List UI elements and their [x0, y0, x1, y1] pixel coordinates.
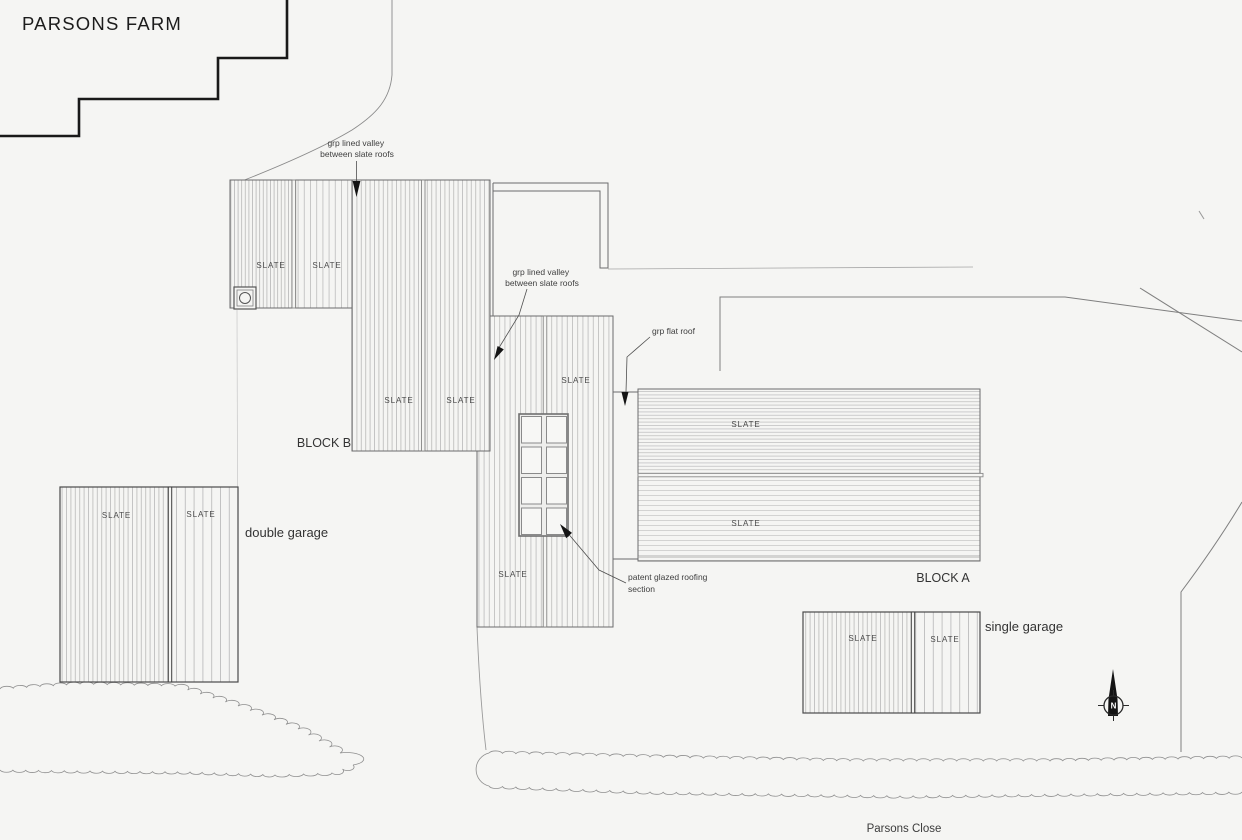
block-a-ridge: [638, 473, 983, 476]
slate-label: SLATE: [256, 261, 285, 270]
hedge-bottom-top-edge: [489, 751, 1242, 761]
slate-label: SLATE: [930, 635, 959, 644]
glazing-pane: [547, 447, 567, 474]
valley-top-annotation-line1: grp lined valley: [327, 138, 384, 148]
plan-canvas: PARSONS FARM grp lined valley between sl…: [0, 0, 1242, 840]
slate-label: SLATE: [848, 634, 877, 643]
glazing-pane: [547, 417, 567, 444]
block-a-label: BLOCK A: [916, 571, 970, 585]
patent-glazing-grid: [519, 414, 568, 536]
block-a-roof-south-slope: [638, 477, 980, 561]
single-garage-ridge: [911, 612, 914, 713]
patent-glazing-annotation: patent glazed roofing section: [628, 572, 710, 594]
street-name-label: Parsons Close: [867, 823, 942, 835]
patent-glazing-annotation-line2: section: [628, 584, 655, 594]
road-edge-curved: [1181, 502, 1242, 752]
site-plan-drawing: PARSONS FARM grp lined valley between sl…: [0, 0, 1242, 840]
block-b-label: BLOCK B: [297, 436, 351, 450]
slate-label: SLATE: [186, 510, 215, 519]
road-edge-diagonal: [1140, 288, 1242, 352]
road-edge-upper: [720, 297, 1242, 371]
glazing-pane: [522, 447, 542, 474]
slate-label: SLATE: [731, 420, 760, 429]
slate-label: SLATE: [102, 511, 131, 520]
glazing-pane: [547, 478, 567, 505]
block-b-left-roof-panel-2: [296, 180, 352, 308]
rear-boundary-line: [608, 267, 973, 269]
double-garage-ridge: [168, 487, 171, 682]
slate-label: SLATE: [446, 396, 475, 405]
block-a-roof-north-slope: [638, 389, 980, 475]
valley-mid-annotation-line2: between slate roofs: [505, 278, 579, 288]
single-garage-roof-panel-1: [803, 612, 913, 713]
slate-label: SLATE: [384, 396, 413, 405]
flat-roof-leader: [626, 337, 650, 392]
slate-label: SLATE: [312, 261, 341, 270]
single-garage-label: single garage: [985, 619, 1063, 634]
hedge-left-top-edge: [0, 682, 364, 765]
valley-mid-annotation-line1: grp lined valley: [512, 267, 569, 277]
glazing-pane: [522, 417, 542, 444]
slate-label: SLATE: [498, 570, 527, 579]
hedge-bottom-end-cap: [476, 753, 489, 786]
patent-glazing-annotation-line1: patent glazed roofing: [628, 572, 708, 582]
glazing-pane: [522, 508, 542, 535]
north-arrow-icon: N: [1098, 669, 1129, 721]
valley-mid-annotation: grp lined valley between slate roofs: [505, 267, 579, 288]
north-letter: N: [1111, 702, 1117, 711]
survey-tick-mark: [1199, 211, 1204, 219]
hedge-left-bottom-edge: [0, 765, 354, 777]
double-garage-label: double garage: [245, 525, 328, 540]
block-b-left-ridge: [292, 180, 296, 308]
page-title: PARSONS FARM: [22, 13, 182, 34]
glazing-pane: [522, 478, 542, 505]
slate-label: SLATE: [731, 519, 760, 528]
slate-label: SLATE: [561, 376, 590, 385]
block-b-main-ridge: [421, 180, 425, 451]
hedge-bottom-bottom-edge: [489, 786, 1242, 798]
single-garage-roof-panel-2: [913, 612, 980, 713]
valley-top-annotation-line2: between slate roofs: [320, 149, 394, 159]
valley-top-annotation: grp lined valley between slate roofs: [320, 138, 394, 159]
path-edge-line: [477, 627, 486, 750]
flat-roof-annotation: grp flat roof: [652, 326, 696, 336]
flat-roof-wall-outline: [493, 183, 608, 268]
flat-roof-arrow-icon: [622, 392, 629, 406]
